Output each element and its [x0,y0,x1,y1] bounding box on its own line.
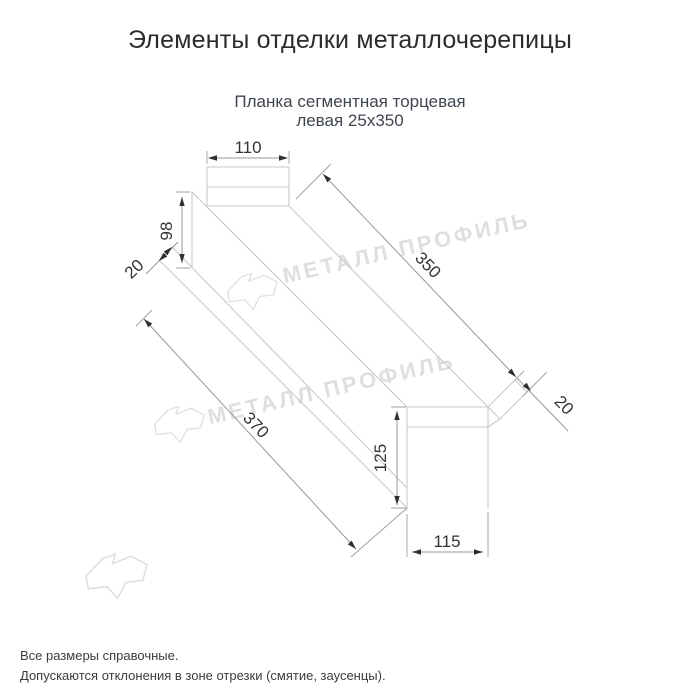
near-end-face [407,407,488,510]
far-end-face [207,167,289,206]
dim-label-far-height: 98 [157,222,176,241]
metall-profil-logo-icon [86,554,147,598]
dim-label-near-height: 125 [371,444,390,472]
metall-profil-logo-icon [228,274,277,310]
dim-label-top-width: 110 [234,138,261,157]
footer-notes: Все размеры справочные. Допускаются откл… [20,646,386,686]
dim-label-near-lip: 20 [551,392,578,419]
technical-drawing: МЕТАЛЛ ПРОФИЛЬ МЕТАЛЛ ПРОФИЛЬ 110 98 [0,0,700,700]
near-end-cap [488,380,527,427]
footer-note-2: Допускаются отклонения в зоне отрезки (с… [20,666,386,686]
dimension-near-width: 115 [407,512,488,557]
dim-label-far-lip: 20 [121,256,148,283]
metall-profil-logo-icon [155,407,204,443]
dimension-near-lip: 20 [517,372,577,431]
dim-label-near-width: 115 [433,532,460,551]
watermark-text: МЕТАЛЛ ПРОФИЛЬ [280,207,532,288]
dimension-near-height: 125 [371,407,406,508]
dimension-length-total: 370 [136,310,407,557]
watermark-group: МЕТАЛЛ ПРОФИЛЬ МЕТАЛЛ ПРОФИЛЬ [86,207,532,598]
product-outline [159,167,527,510]
dimension-top-width: 110 [207,138,289,164]
drawing-page: Элементы отделки металлочерепицы Планка … [0,0,700,700]
dimension-far-lip: 20 [121,242,178,282]
footer-note-1: Все размеры справочные. [20,646,386,666]
